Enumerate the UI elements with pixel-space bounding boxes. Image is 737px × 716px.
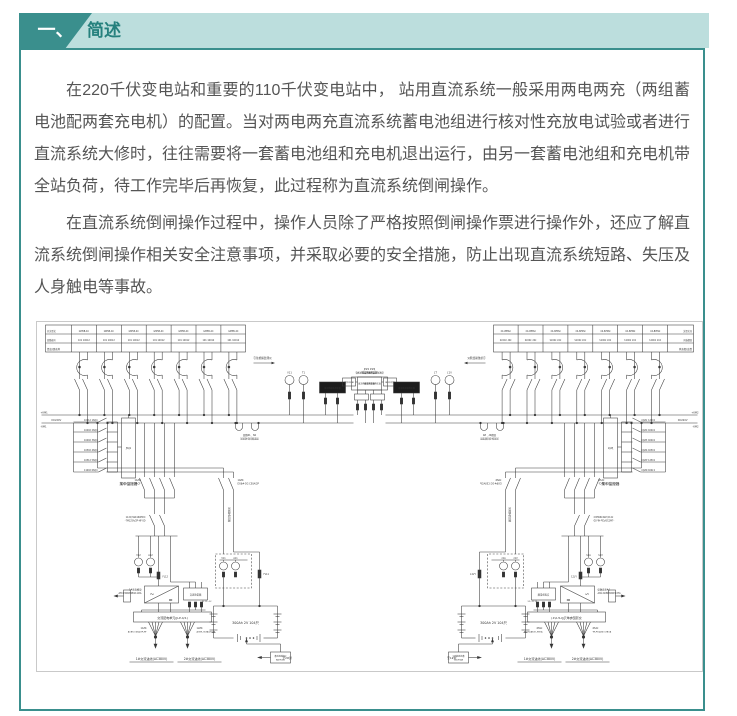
ac-in1-right: 1#交流进线(AC380V)	[524, 656, 556, 661]
section-number: 一、	[19, 13, 92, 48]
bus-pos-left: +KM1	[41, 412, 49, 415]
monitor-caption-left: 集中监控器	[120, 481, 138, 486]
section-banner: 一、 简述	[19, 13, 709, 48]
ac-in1-left: 1#交流进线(AC380V)	[136, 656, 168, 661]
article-text: 在220千伏变电站和重要的110千伏变电站中， 站用直流系统一般采用两电两充（两…	[21, 50, 703, 304]
paragraph-2: 在直流系统倒闸操作过程中，操作人员除了严格按照倒闸操作票进行操作外，还应了解直流…	[34, 208, 690, 304]
page: { "header": { "number": "一、", "title": "…	[0, 0, 737, 716]
dc-system-schematic: 开关型式 回路编号 馈出回路名称 GM5B-4C GM5B-4C GM5B-4C…	[36, 321, 703, 672]
ac-in2-left: 2#交流进线(AC380V)	[184, 656, 216, 661]
bus-volt-left: DC220V	[52, 419, 62, 422]
content-box: 在220千伏变电站和重要的110千伏变电站中， 站用直流系统一般采用两电两充（两…	[19, 48, 705, 711]
ac-in2-right: 2#交流进线(AC380V)	[572, 656, 604, 661]
patrol-arrow-right-label: 至2#屏	[283, 656, 293, 660]
battery-spec-right: 300Ah 2V 104只	[480, 621, 507, 625]
bus-pos-right: +KM2	[691, 412, 699, 415]
section-title: 简述	[87, 13, 121, 48]
bus-volt-right: DC220V	[678, 419, 688, 422]
battery-spec-left: 300Ah 2V 104只	[232, 621, 259, 625]
bus-neg-right: -KM2	[692, 426, 698, 429]
patrol-arrow-left-label: 至1#屏	[447, 656, 457, 660]
bus-neg-left: -KM1	[41, 426, 47, 429]
paragraph-1: 在220千伏变电站和重要的110千伏变电站中， 站用直流系统一般采用两电两充（两…	[34, 75, 690, 203]
schematic-left-half	[42, 325, 397, 663]
schematic-svg: 开关型式 回路编号 馈出回路名称 GM5B-4C GM5B-4C GM5B-4C…	[37, 322, 702, 671]
monitor-caption-right: 集中监控器	[602, 481, 620, 486]
schematic-right-half	[343, 325, 698, 663]
